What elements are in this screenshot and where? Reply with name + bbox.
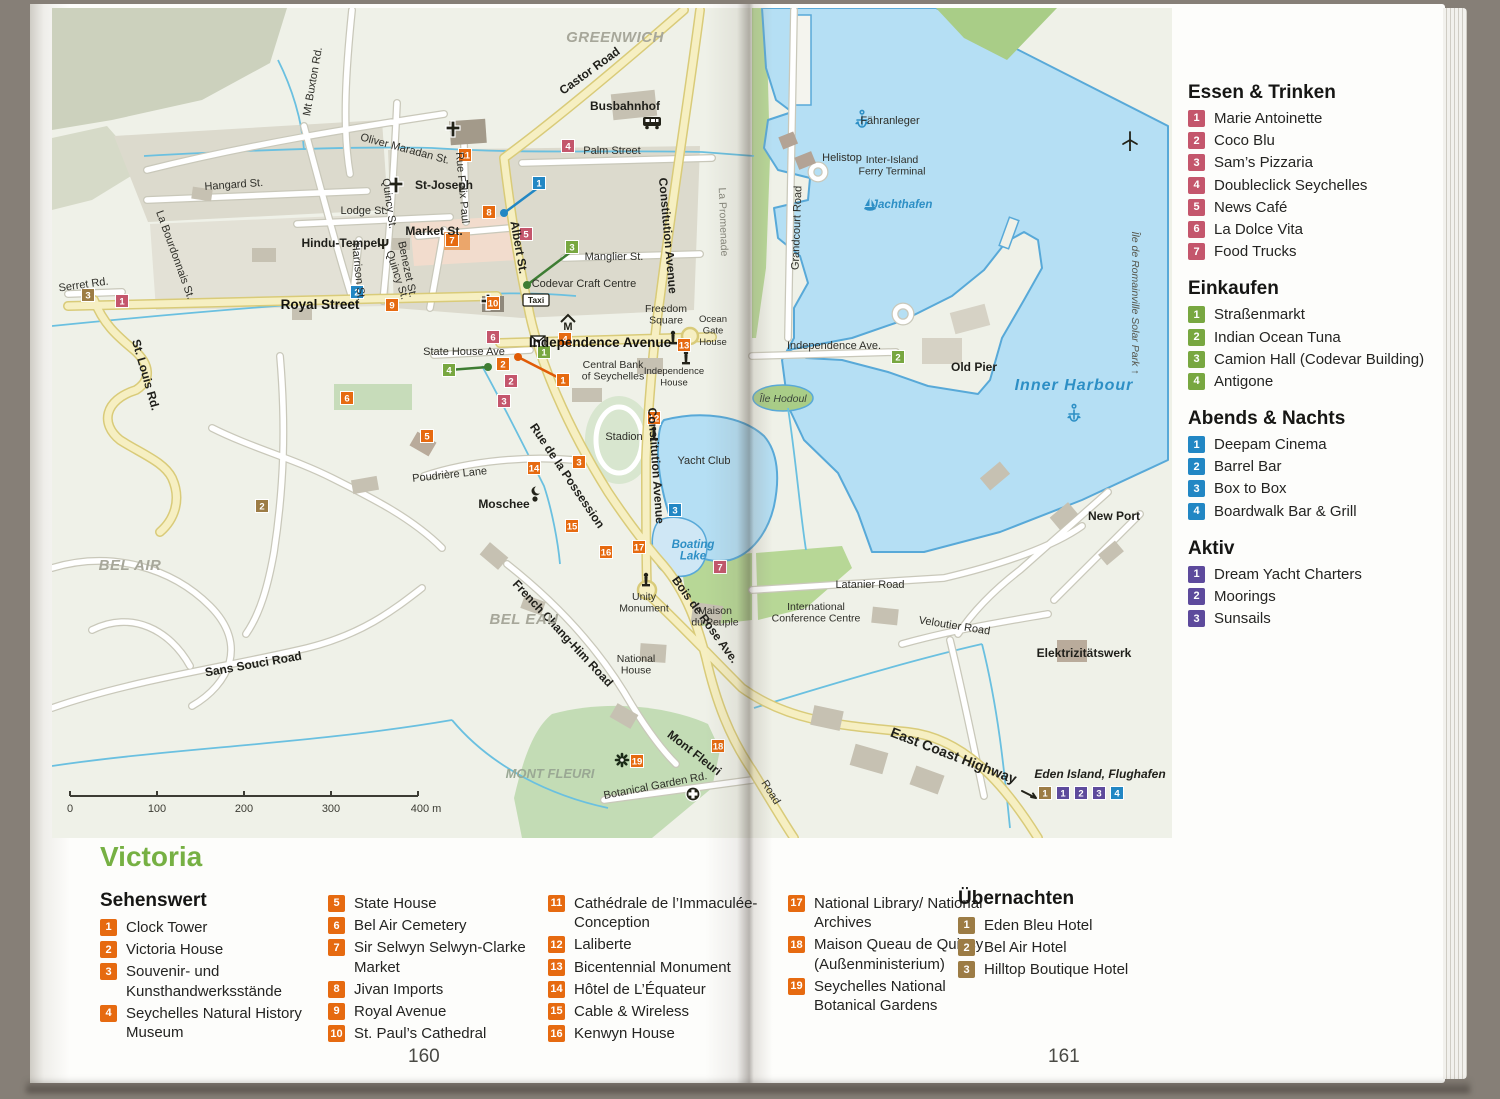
- legend-label: Barrel Bar: [1214, 457, 1282, 476]
- map-marker-sehenswert-3[interactable]: 3: [573, 456, 586, 469]
- legend-item: 6La Dolce Vita: [1188, 220, 1444, 239]
- svg-text:4: 4: [565, 141, 571, 152]
- legend-label: St. Paul’s Cathedral: [354, 1024, 486, 1043]
- map-label: Jachthafen: [872, 199, 933, 211]
- legend-label: Seychelles Natural History Museum: [126, 1004, 318, 1042]
- legend-section-sehenswert-2: 5State House6Bel Air Cemetery7Sir Selwyn…: [328, 894, 546, 1043]
- legend-item: 1Straßenmarkt: [1188, 305, 1444, 324]
- svg-text:3: 3: [672, 505, 677, 516]
- legend-label: News Café: [1214, 198, 1287, 217]
- svg-text:2: 2: [500, 359, 505, 370]
- guidebook-spread: ΨMTaxi1234567891011121314151617181912345…: [0, 0, 1500, 1099]
- legend-item: 8Jivan Imports: [328, 980, 546, 999]
- map-label: Codevar Craft Centre: [532, 278, 637, 290]
- map-marker-uebernachten-2[interactable]: 2: [256, 500, 269, 513]
- legend-heading: Einkaufen: [1188, 278, 1444, 300]
- uebernachten-col: Übernachten1Eden Bleu Hotel2Bel Air Hote…: [958, 888, 1198, 997]
- svg-text:300: 300: [322, 803, 340, 815]
- legend-item: 1Marie Antoinette: [1188, 109, 1444, 128]
- svg-text:3: 3: [85, 290, 90, 301]
- map-marker-sehenswert-2[interactable]: 2: [497, 358, 510, 371]
- legend-item: 4Antigone: [1188, 372, 1444, 391]
- svg-text:5: 5: [424, 431, 430, 442]
- legend-label: Dream Yacht Charters: [1214, 565, 1362, 584]
- svg-text:6: 6: [490, 332, 495, 343]
- legend-badge: 17: [788, 895, 805, 912]
- legend-badge: 14: [548, 981, 565, 998]
- legend-label: Food Trucks: [1214, 242, 1297, 261]
- legend-label: Clock Tower: [126, 918, 207, 937]
- svg-text:0: 0: [67, 803, 73, 815]
- map-label: BEL EAU: [489, 611, 559, 628]
- legend-section-essen: Essen & Trinken1Marie Antoinette2Coco Bl…: [1188, 82, 1444, 261]
- legend-badge: 5: [328, 895, 345, 912]
- legend-label: Coco Blu: [1214, 131, 1275, 150]
- legend-badge: 3: [100, 963, 117, 980]
- svg-text:M: M: [563, 321, 572, 333]
- legend-badge: 1: [100, 919, 117, 936]
- map-marker-essen-6[interactable]: 6: [487, 331, 500, 344]
- legend-item: 16Kenwyn House: [548, 1024, 780, 1043]
- svg-text:17: 17: [634, 542, 645, 553]
- legend-item: 7Sir Selwyn Selwyn-Clarke Market: [328, 938, 546, 976]
- legend-badge: 3: [958, 961, 975, 978]
- legend-label: Indian Ocean Tuna: [1214, 328, 1341, 347]
- legend-badge: 7: [328, 939, 345, 956]
- map-label: Helistop: [822, 152, 862, 164]
- map-label: GREENWICH: [566, 29, 665, 46]
- map-label: Royal Street: [281, 297, 360, 312]
- legend-item: 3Camion Hall (Codevar Building): [1188, 350, 1444, 369]
- legend-badge: 10: [328, 1025, 345, 1042]
- map-marker-sehenswert-15[interactable]: 15: [566, 520, 579, 533]
- sehenswert-col-1: Sehenswert1Clock Tower2Victoria House3So…: [100, 890, 318, 1059]
- svg-text:1: 1: [560, 375, 566, 386]
- legend-item: 3Sunsails: [1188, 609, 1444, 628]
- svg-text:3: 3: [501, 396, 506, 407]
- legend-item: 11Cathédrale de l’Immaculée-Conception: [548, 894, 780, 932]
- map-label: Île Hodoul: [759, 392, 807, 405]
- map-marker-sehenswert-16[interactable]: 16: [600, 546, 613, 559]
- svg-text:8: 8: [486, 207, 491, 218]
- legend-item: 3Souvenir- und Kunsthandwerksstände: [100, 962, 318, 1000]
- legend-heading: Abends & Nachts: [1188, 408, 1444, 430]
- legend-label: Boardwalk Bar & Grill: [1214, 502, 1357, 521]
- legend-badge: 18: [788, 936, 805, 953]
- legend-label: Sunsails: [1214, 609, 1271, 628]
- page-edge-stack: [1443, 8, 1467, 1079]
- legend-label: Jivan Imports: [354, 980, 443, 999]
- sehenswert-col-2: 5State House6Bel Air Cemetery7Sir Selwyn…: [328, 894, 546, 1060]
- legend-label: Laliberte: [574, 935, 632, 954]
- legend-badge: 1: [1188, 306, 1205, 323]
- map-marker-abends-4[interactable]: 4: [1111, 787, 1124, 800]
- legend-label: Souvenir- und Kunsthandwerksstände: [126, 962, 318, 1000]
- medcross-icon: [686, 787, 700, 801]
- map-label: Elektrizitätswerk: [1037, 646, 1132, 660]
- leader-dot: [500, 209, 508, 217]
- legend-badge: 1: [1188, 566, 1205, 583]
- legend-badge: 16: [548, 1025, 565, 1042]
- map-label: New Port: [1088, 509, 1140, 523]
- legend-section-abends: Abends & Nachts1Deepam Cinema2Barrel Bar…: [1188, 408, 1444, 521]
- map-marker-sehenswert-1[interactable]: 1: [557, 374, 570, 387]
- legend-item: 2Victoria House: [100, 940, 318, 959]
- map-label: NationalHouse: [617, 653, 656, 677]
- legend-label: Deepam Cinema: [1214, 435, 1327, 454]
- map-label: La Promenade: [716, 187, 730, 256]
- legend-badge: 19: [788, 978, 805, 995]
- legend-badge: 7: [1188, 243, 1205, 260]
- book-shadow: [26, 1079, 1470, 1093]
- svg-text:16: 16: [601, 547, 612, 558]
- sehenswert-col-3: 11Cathédrale de l’Immaculée-Conception12…: [548, 894, 780, 1060]
- legend-item: 3Sam’s Pizzaria: [1188, 153, 1444, 172]
- map-marker-essen-4[interactable]: 4: [562, 140, 575, 153]
- leader-dot: [514, 353, 522, 361]
- svg-text:1: 1: [1042, 788, 1048, 799]
- legend-section-einkaufen: Einkaufen1Straßenmarkt2Indian Ocean Tuna…: [1188, 278, 1444, 391]
- map-marker-aktiv-1[interactable]: 1: [1057, 787, 1070, 800]
- legend-label: Hilltop Boutique Hotel: [984, 960, 1128, 979]
- legend-badge: 6: [328, 917, 345, 934]
- page-number-left: 160: [408, 1046, 440, 1068]
- legend-badge: 2: [1188, 458, 1205, 475]
- legend-item: 9Royal Avenue: [328, 1002, 546, 1021]
- legend-heading: Essen & Trinken: [1188, 82, 1444, 104]
- legend-label: Bel Air Hotel: [984, 938, 1067, 957]
- legend-badge: 4: [1188, 503, 1205, 520]
- legend-label: Straßenmarkt: [1214, 305, 1305, 324]
- svg-text:2: 2: [1078, 788, 1083, 799]
- map-marker-aktiv-2[interactable]: 2: [1075, 787, 1088, 800]
- map-label: OceanGateHouse: [699, 314, 727, 348]
- svg-text:2: 2: [895, 352, 900, 363]
- legend-item: 6Bel Air Cemetery: [328, 916, 546, 935]
- legend-label: Bicentennial Monument: [574, 958, 731, 977]
- legend-item: 2Moorings: [1188, 587, 1444, 606]
- legend-label: Cathédrale de l’Immaculée-Conception: [574, 894, 780, 932]
- legend-item: 10St. Paul’s Cathedral: [328, 1024, 546, 1043]
- map-label: Maisondu Peuple: [691, 605, 738, 629]
- legend-badge: 2: [1188, 329, 1205, 346]
- legend-badge: 13: [548, 959, 565, 976]
- map-label: Moschee: [478, 497, 530, 511]
- map-label: Fähranleger: [860, 115, 920, 127]
- legend-item: 1Clock Tower: [100, 918, 318, 937]
- svg-text:7: 7: [717, 562, 722, 573]
- legend-heading: Aktiv: [1188, 538, 1444, 560]
- map-label: Market St.: [405, 224, 462, 238]
- map-marker-sehenswert-8[interactable]: 8: [483, 206, 496, 219]
- legend-badge: 3: [1188, 480, 1205, 497]
- legend-heading: Übernachten: [958, 888, 1198, 910]
- map-marker-essen-1[interactable]: 1: [116, 295, 129, 308]
- svg-text:15: 15: [567, 521, 578, 532]
- legend-label: Cable & Wireless: [574, 1002, 689, 1021]
- svg-text:4: 4: [446, 365, 452, 376]
- legend-section-sehenswert-3: 11Cathédrale de l’Immaculée-Conception12…: [548, 894, 780, 1043]
- legend-label: Sam’s Pizzaria: [1214, 153, 1313, 172]
- svg-text:200: 200: [235, 803, 253, 815]
- map-marker-sehenswert-9[interactable]: 9: [386, 299, 399, 312]
- legend-badge: 9: [328, 1003, 345, 1020]
- legend-label: Moorings: [1214, 587, 1276, 606]
- map-marker-sehenswert-19[interactable]: 19: [631, 755, 644, 768]
- legend-item: 4Doubleclick Seychelles: [1188, 176, 1444, 195]
- legend-badge: 1: [1188, 110, 1205, 127]
- map-label: Stadion: [605, 431, 642, 443]
- svg-text:14: 14: [529, 463, 540, 474]
- legend-badge: 8: [328, 981, 345, 998]
- svg-text:1: 1: [536, 178, 542, 189]
- map-marker-einkaufen-3[interactable]: 3: [566, 241, 579, 254]
- map-label: Yacht Club: [678, 455, 731, 467]
- map-marker-essen-7[interactable]: 7: [714, 561, 727, 574]
- map-label: Latanier Road: [835, 579, 904, 591]
- legend-item: 13Bicentennial Monument: [548, 958, 780, 977]
- legend-label: State House: [354, 894, 437, 913]
- map-legend-sidebar: Essen & Trinken1Marie Antoinette2Coco Bl…: [1188, 82, 1444, 645]
- taxi-icon: Taxi: [523, 294, 549, 306]
- map-label: Inner Harbour: [1015, 377, 1134, 394]
- legend-label: Doubleclick Seychelles: [1214, 176, 1367, 195]
- map-label: Inter-IslandFerry Terminal: [859, 154, 926, 178]
- legend-section-aktiv: Aktiv1Dream Yacht Charters2Moorings3Suns…: [1188, 538, 1444, 629]
- legend-label: Bel Air Cemetery: [354, 916, 467, 935]
- legend-badge: 3: [1188, 610, 1205, 627]
- map-label: Lodge St.: [340, 205, 387, 217]
- map-marker-sehenswert-18[interactable]: 18: [712, 740, 725, 753]
- leader-dot: [523, 281, 531, 289]
- map-marker-sehenswert-6[interactable]: 6: [341, 392, 354, 405]
- legend-item: 2Bel Air Hotel: [958, 938, 1198, 957]
- svg-text:18: 18: [713, 741, 724, 752]
- svg-text:100: 100: [148, 803, 166, 815]
- map-label: Eden Island, Flughafen: [1034, 767, 1165, 781]
- map-label: Palm Street: [583, 145, 640, 157]
- map-label: FreedomSquare: [645, 303, 687, 327]
- map-marker-abends-3[interactable]: 3: [669, 504, 682, 517]
- legend-badge: 11: [548, 895, 565, 912]
- map-marker-aktiv-3[interactable]: 3: [1093, 787, 1106, 800]
- svg-text:9: 9: [389, 300, 394, 311]
- map-label: State House Ave: [423, 346, 505, 358]
- svg-text:2: 2: [259, 501, 264, 512]
- page-title: Victoria: [100, 841, 202, 873]
- map-label: Central Bankof Seychelles: [582, 359, 644, 383]
- legend-badge: 4: [100, 1005, 117, 1022]
- map-marker-sehenswert-13[interactable]: 13: [678, 339, 691, 352]
- legend-badge: 1: [1188, 436, 1205, 453]
- legend-item: 1Deepam Cinema: [1188, 435, 1444, 454]
- map-marker-einkaufen-2[interactable]: 2: [892, 351, 905, 364]
- legend-item: 2Indian Ocean Tuna: [1188, 328, 1444, 347]
- svg-text:1: 1: [119, 296, 125, 307]
- map-marker-sehenswert-14[interactable]: 14: [528, 462, 541, 475]
- legend-badge: 4: [1188, 177, 1205, 194]
- legend-label: Box to Box: [1214, 479, 1287, 498]
- legend-badge: 2: [1188, 132, 1205, 149]
- legend-label: Victoria House: [126, 940, 223, 959]
- map-label: Île de Romainville Solar Park ↑: [1129, 232, 1142, 375]
- legend-badge: 5: [1188, 199, 1205, 216]
- map-marker-essen-2[interactable]: 2: [505, 375, 518, 388]
- svg-text:10: 10: [488, 298, 499, 309]
- legend-item: 5State House: [328, 894, 546, 913]
- legend-item: 3Box to Box: [1188, 479, 1444, 498]
- map-label: Independence Avenue: [529, 335, 672, 350]
- svg-text:3: 3: [569, 242, 574, 253]
- leader-dot: [484, 363, 492, 371]
- legend-label: Antigone: [1214, 372, 1273, 391]
- flower-icon: [616, 754, 628, 766]
- legend-badge: 3: [1188, 351, 1205, 368]
- victoria-city-map[interactable]: ΨMTaxi1234567891011121314151617181912345…: [52, 8, 1172, 838]
- legend-badge: 3: [1188, 154, 1205, 171]
- legend-badge: 2: [100, 941, 117, 958]
- legend-label: Eden Bleu Hotel: [984, 916, 1092, 935]
- svg-text:13: 13: [679, 340, 690, 351]
- legend-item: 1Eden Bleu Hotel: [958, 916, 1198, 935]
- legend-item: 5News Café: [1188, 198, 1444, 217]
- map-label: MONT FLEURI: [506, 766, 595, 781]
- svg-text:6: 6: [344, 393, 349, 404]
- map-label: Busbahnhof: [590, 99, 661, 113]
- legend-label: Marie Antoinette: [1214, 109, 1322, 128]
- legend-item: 4Seychelles Natural History Museum: [100, 1004, 318, 1042]
- legend-label: Royal Avenue: [354, 1002, 446, 1021]
- legend-label: Hôtel de L’Équateur: [574, 980, 706, 999]
- legend-item: 2Coco Blu: [1188, 131, 1444, 150]
- legend-item: 7Food Trucks: [1188, 242, 1444, 261]
- legend-badge: 2: [1188, 588, 1205, 605]
- legend-item: 15Cable & Wireless: [548, 1002, 780, 1021]
- legend-section-uebernachten: Übernachten1Eden Bleu Hotel2Bel Air Hote…: [958, 888, 1198, 980]
- map-label: Independence Ave.: [787, 340, 881, 352]
- legend-badge: 1: [958, 917, 975, 934]
- legend-item: 12Laliberte: [548, 935, 780, 954]
- legend-badge: 15: [548, 1003, 565, 1020]
- svg-text:2: 2: [508, 376, 513, 387]
- map-marker-einkaufen-4[interactable]: 4: [443, 364, 456, 377]
- legend-label: Camion Hall (Codevar Building): [1214, 350, 1424, 369]
- svg-text:3: 3: [576, 457, 581, 468]
- map-marker-essen-3[interactable]: 3: [498, 395, 511, 408]
- map-marker-sehenswert-5[interactable]: 5: [421, 430, 434, 443]
- svg-text:3: 3: [1096, 788, 1101, 799]
- map-label: Old Pier: [951, 360, 997, 374]
- legend-item: 1Dream Yacht Charters: [1188, 565, 1444, 584]
- map-marker-abends-1[interactable]: 1: [533, 177, 546, 190]
- legend-badge: 4: [1188, 373, 1205, 390]
- map-label: Manglier St.: [585, 251, 644, 263]
- svg-text:400 m: 400 m: [411, 803, 442, 815]
- legend-item: 4Boardwalk Bar & Grill: [1188, 502, 1444, 521]
- legend-item: 2Barrel Bar: [1188, 457, 1444, 476]
- svg-text:1: 1: [1060, 788, 1066, 799]
- legend-heading: Sehenswert: [100, 890, 318, 912]
- svg-text:Taxi: Taxi: [528, 295, 544, 305]
- page-number-right: 161: [1048, 1046, 1080, 1068]
- legend-section-sehenswert-1: Sehenswert1Clock Tower2Victoria House3So…: [100, 890, 318, 1042]
- legend-item: 14Hôtel de L’Équateur: [548, 980, 780, 999]
- legend-badge: 2: [958, 939, 975, 956]
- legend-label: Kenwyn House: [574, 1024, 675, 1043]
- map-label: BEL AIR: [99, 557, 162, 574]
- svg-text:4: 4: [1114, 788, 1120, 799]
- legend-label: Sir Selwyn Selwyn-Clarke Market: [354, 938, 546, 976]
- map-marker-sehenswert-17[interactable]: 17: [633, 541, 646, 554]
- legend-item: 3Hilltop Boutique Hotel: [958, 960, 1198, 979]
- svg-text:19: 19: [632, 756, 643, 767]
- map-marker-uebernachten-1[interactable]: 1: [1039, 787, 1052, 800]
- legend-badge: 6: [1188, 221, 1205, 238]
- map-marker-sehenswert-10[interactable]: 10: [487, 297, 500, 310]
- legend-badge: 12: [548, 936, 565, 953]
- map-label: Hindu-Tempel: [301, 236, 380, 250]
- legend-label: La Dolce Vita: [1214, 220, 1303, 239]
